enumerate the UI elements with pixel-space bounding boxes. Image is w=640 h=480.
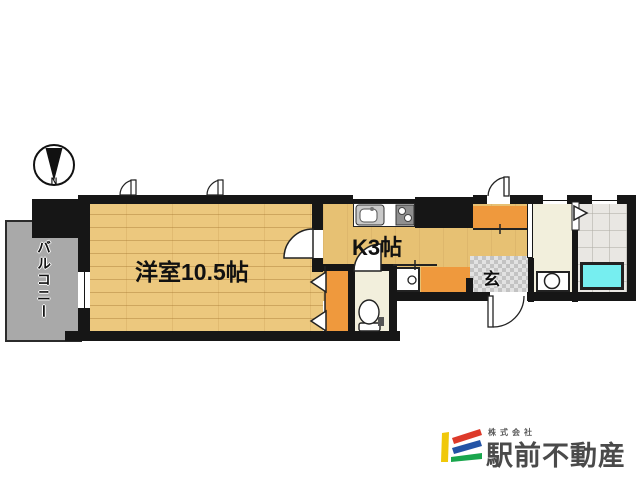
compass-icon: N	[34, 145, 74, 186]
washing-machine-drum-icon	[545, 274, 560, 289]
closet-door-triangles	[311, 266, 326, 331]
western-room-label: 洋室10.5帖	[135, 253, 249, 287]
company-logo-icon	[441, 429, 482, 462]
door-arc-western-room	[284, 229, 313, 258]
bathroom-door-icon	[572, 202, 587, 230]
company-name: 駅前不動産	[486, 434, 626, 473]
washbasin-bowl-icon	[408, 276, 416, 284]
kitchen-label: K3帖	[352, 230, 402, 262]
door-arc-entrance	[488, 296, 524, 327]
plan-overlay: N	[0, 0, 640, 480]
compass-letter: N	[51, 176, 58, 186]
window-swing-icon	[120, 180, 136, 195]
opening-tick-lines	[393, 224, 527, 270]
toilet-icon	[359, 300, 384, 331]
door-arc-storage-top	[488, 177, 509, 196]
floor-plan: バルコニー 玄	[0, 0, 640, 480]
stove-icon	[396, 205, 414, 225]
kitchen-sink-icon	[356, 205, 384, 225]
window-swing-icon	[207, 180, 223, 195]
